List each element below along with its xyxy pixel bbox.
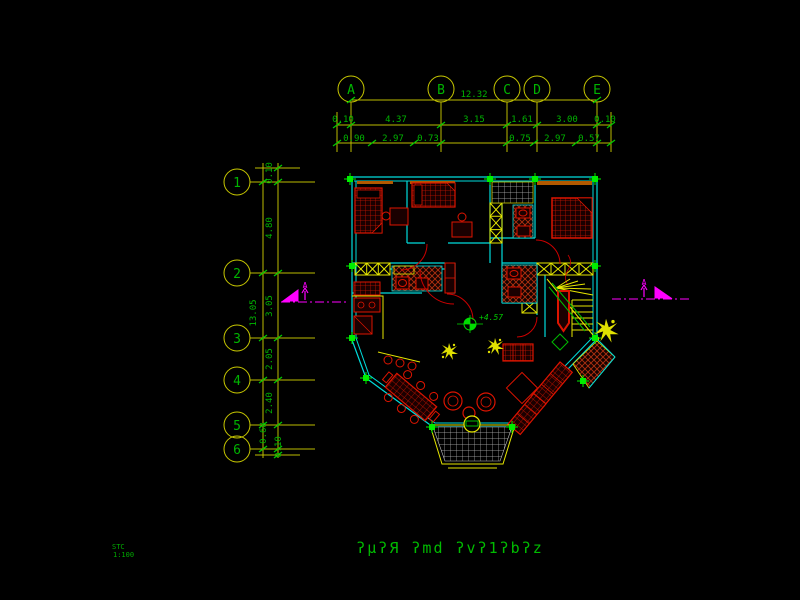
svg-text:3.15: 3.15 (463, 115, 485, 125)
staircase (547, 279, 593, 350)
top-dim-lines (337, 100, 611, 152)
kitchen (352, 282, 383, 339)
overall-width-dim: 12.32 (460, 90, 487, 100)
section-marker-left: A (281, 281, 348, 302)
column-label-e: E (593, 83, 601, 98)
plant-icon (441, 343, 458, 360)
bar-stool-3 (408, 362, 416, 370)
svg-text:3.05: 3.05 (265, 295, 275, 317)
bedroom-furniture (355, 183, 592, 293)
row-label-4: 4 (233, 374, 241, 389)
floor-plan-drawing: A B C D E 12.32 0.10 (0, 0, 800, 600)
column-label-c: C (503, 83, 511, 98)
row-label-1: 1 (233, 176, 241, 191)
svg-text:2.40: 2.40 (265, 392, 275, 414)
svg-text:2.97: 2.97 (382, 134, 404, 144)
row-label-2: 2 (233, 267, 241, 282)
svg-text:0.10: 0.10 (274, 436, 284, 458)
plant-icon (487, 338, 504, 355)
section-label-right: A (642, 278, 647, 287)
desk-1 (390, 208, 408, 225)
svg-text:0.10: 0.10 (332, 115, 354, 125)
plant-icon (595, 319, 619, 343)
svg-text:1.61: 1.61 (511, 115, 533, 125)
svg-text:4.80: 4.80 (265, 217, 275, 239)
column-label-b: B (437, 83, 445, 98)
terrace (430, 416, 515, 468)
section-marker-right: A (612, 278, 690, 299)
level-value: +4.57 (479, 313, 503, 322)
svg-text:0.75: 0.75 (509, 134, 531, 144)
bathroom-top-hatch (492, 182, 533, 203)
row-label-5: 5 (233, 419, 241, 434)
svg-text:2.05: 2.05 (265, 348, 275, 370)
stove (354, 282, 380, 295)
left-dim-texts: 0.10 4.80 3.05 2.05 2.40 0.68 0.10 13.05 (249, 162, 284, 458)
column-label-a: A (347, 83, 355, 98)
lintel-left (357, 181, 393, 184)
lintel-right (537, 181, 592, 185)
row-label-6: 6 (233, 443, 241, 458)
svg-text:4.37: 4.37 (385, 115, 407, 125)
bar-stool-2 (396, 359, 404, 367)
svg-text:0.10: 0.10 (594, 115, 616, 125)
dining-table (374, 361, 449, 433)
top-dim-texts: 12.32 0.10 4.37 3.15 1.61 3.00 0.10 0.90… (332, 90, 616, 144)
armchair-2 (477, 393, 495, 411)
svg-text:0.57: 0.57 (578, 134, 600, 144)
svg-text:0.73: 0.73 (417, 134, 439, 144)
sofa-1 (503, 344, 533, 361)
floor-plan: +4.57 (344, 173, 619, 468)
note-line-1: STC (112, 543, 125, 551)
row-label-3: 3 (233, 332, 241, 347)
column-label-d: D (533, 83, 541, 98)
left-axis: 1 2 3 4 5 6 0.10 4.80 (224, 162, 315, 462)
desk-2 (452, 222, 472, 237)
svg-text:0.90: 0.90 (343, 134, 365, 144)
svg-text:2.97: 2.97 (544, 134, 566, 144)
top-axis: A B C D E 12.32 0.10 (332, 76, 616, 152)
drawing-title-mirrored: ʔμʔЯ ʔmd ʔvʔ1ʔbʔz (356, 539, 544, 557)
svg-text:0.10: 0.10 (265, 162, 275, 184)
svg-text:0.68: 0.68 (259, 422, 269, 444)
bar-stool-1 (384, 356, 392, 364)
left-dim-lines (250, 163, 315, 458)
level-marker: +4.57 (457, 313, 503, 333)
note-line-2: 1:100 (113, 551, 134, 559)
cad-drawing-canvas[interactable]: A B C D E 12.32 0.10 (0, 0, 800, 600)
svg-text:3.00: 3.00 (556, 115, 578, 125)
section-label-left: A (303, 281, 308, 290)
overall-height-dim: 13.05 (249, 299, 259, 326)
armchair-1 (444, 392, 462, 410)
